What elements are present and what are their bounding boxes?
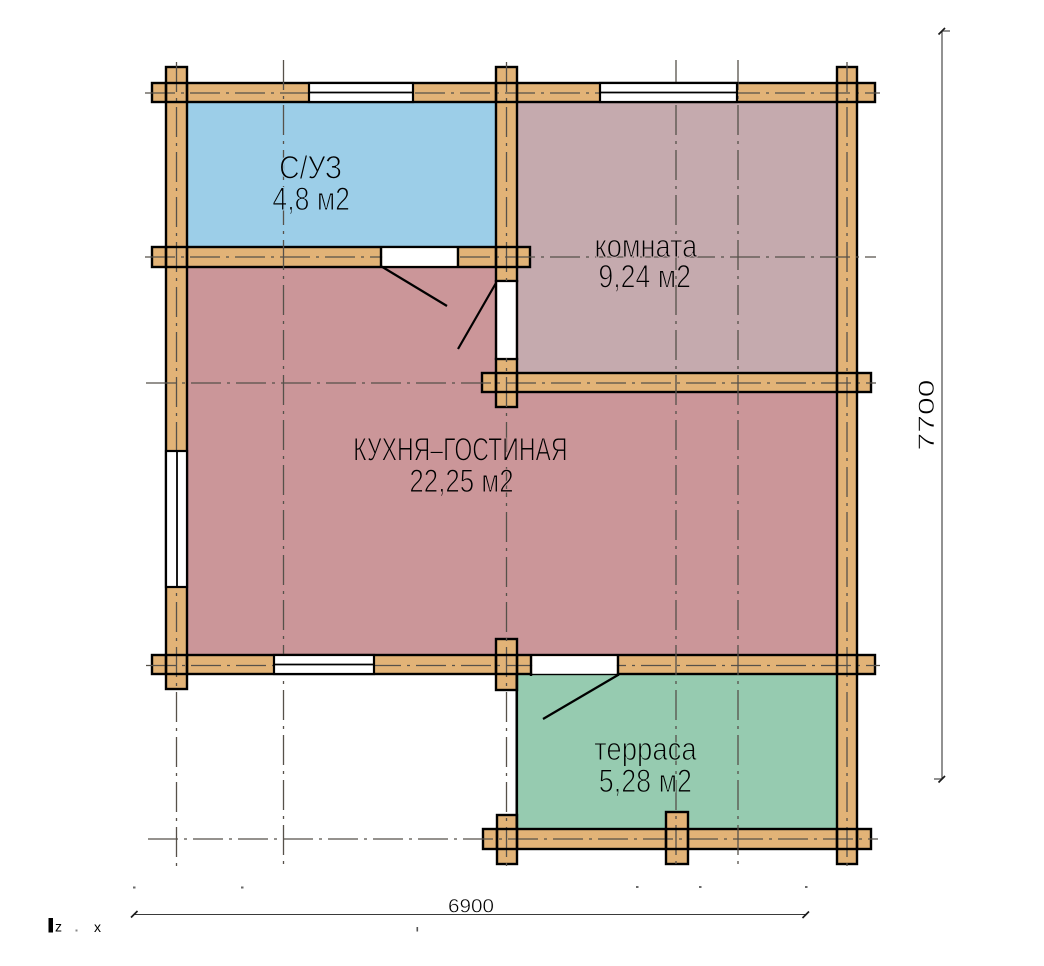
svg-text:6900: 6900	[448, 897, 494, 918]
svg-text:x: x	[94, 919, 101, 935]
svg-text:7700: 7700	[914, 380, 939, 451]
svg-text:z: z	[55, 919, 62, 935]
svg-text:терраса: терраса	[594, 731, 697, 767]
svg-text:9,24 м2: 9,24 м2	[598, 259, 691, 295]
svg-text:22,25 м2: 22,25 м2	[409, 463, 513, 499]
svg-text:4,8 м2: 4,8 м2	[272, 181, 350, 217]
svg-text:5,28 м2: 5,28 м2	[599, 763, 692, 799]
